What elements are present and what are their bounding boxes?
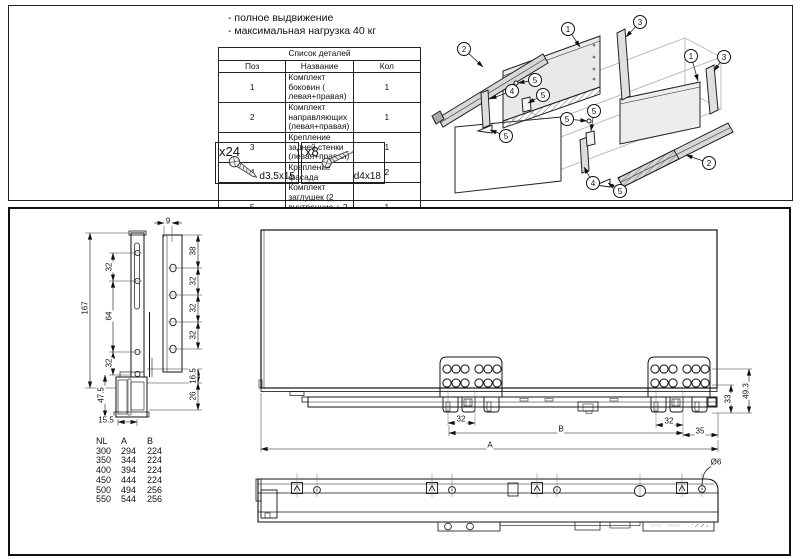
screw-size-label: d4x18 bbox=[354, 171, 381, 182]
dimension-label: 32 bbox=[189, 276, 198, 287]
dimension-label: 15.5 bbox=[97, 416, 115, 425]
dimension-label: 47.5 bbox=[97, 386, 106, 404]
rail-plan-view bbox=[256, 466, 718, 531]
assembled-side-view bbox=[259, 230, 752, 452]
instruction-sheet: - полное выдвижение- максимальная нагруз… bbox=[0, 0, 800, 559]
screw-box-small: x24 d3,5x15 bbox=[215, 142, 299, 184]
note-max-load: - максимальная нагрузка 40 кг bbox=[228, 25, 376, 37]
screw-box-large: x8 d4x18 bbox=[301, 142, 385, 184]
dimension-label: B bbox=[557, 425, 564, 434]
svg-text:3: 3 bbox=[722, 53, 727, 62]
rear-bracket-right bbox=[706, 65, 718, 114]
plug-inner bbox=[522, 97, 531, 112]
dimension-label: 32 bbox=[105, 262, 114, 273]
dimension-label: 16.5 bbox=[189, 367, 198, 385]
rear-bracket-left bbox=[617, 29, 630, 100]
dimension-label: A bbox=[486, 441, 493, 450]
note-full-extension: - полное выдвижение bbox=[228, 12, 333, 24]
dimension-label: 32 bbox=[189, 330, 198, 341]
svg-text:2: 2 bbox=[707, 159, 712, 168]
dimension-label: 32 bbox=[456, 415, 467, 424]
col-position: Поз bbox=[219, 61, 286, 73]
plug-round bbox=[514, 81, 518, 85]
dimension-label: 33 bbox=[724, 394, 733, 405]
facade-bracket-left bbox=[481, 90, 490, 128]
plug-inner bbox=[586, 131, 595, 146]
size-table: NLAB300294224350344224400394224450444224… bbox=[96, 437, 173, 505]
dimension-label: 167 bbox=[81, 300, 90, 315]
col-qty: Кол bbox=[353, 61, 420, 73]
svg-text:4: 4 bbox=[510, 87, 515, 96]
svg-text:5: 5 bbox=[592, 107, 597, 116]
svg-text:5: 5 bbox=[541, 91, 546, 100]
screw-size-label: d3,5x15 bbox=[259, 171, 295, 182]
svg-text:5: 5 bbox=[533, 76, 538, 85]
dimension-label: 26 bbox=[189, 391, 198, 402]
dimension-label: 64 bbox=[105, 311, 114, 322]
exploded-assembly-drawing: 21313545555452 bbox=[428, 7, 793, 199]
parts-list-table: Список деталей Поз Название Кол 1Комплек… bbox=[218, 47, 421, 233]
svg-text:5: 5 bbox=[618, 187, 623, 196]
svg-text:3: 3 bbox=[638, 18, 643, 27]
parts-table-row: 2Комплект направляющих (левая+правая)1 bbox=[219, 102, 421, 132]
col-name: Название bbox=[286, 61, 353, 73]
mounting-bracket-front bbox=[440, 357, 502, 412]
plug-round bbox=[587, 119, 591, 123]
side-panel-right bbox=[620, 82, 700, 144]
product-notes: - полное выдвижение- максимальная нагруз… bbox=[228, 12, 376, 38]
parts-table-row: 1Комплект боковин ( левая+правая)1 bbox=[219, 73, 421, 103]
dimension-label: 35 bbox=[695, 427, 706, 436]
svg-text:5: 5 bbox=[504, 132, 509, 141]
assembly-overview-panel: - полное выдвижение- максимальная нагруз… bbox=[8, 5, 793, 201]
dimension-label: 32 bbox=[664, 417, 675, 426]
svg-text:4: 4 bbox=[591, 179, 596, 188]
svg-text:1: 1 bbox=[689, 52, 694, 61]
dimension-label: Ø6 bbox=[710, 458, 723, 467]
front-panel bbox=[455, 117, 561, 193]
dimension-label: 9 bbox=[165, 217, 171, 226]
mounting-bracket-rear bbox=[648, 357, 710, 412]
parts-table-title: Список деталей bbox=[219, 48, 421, 61]
dimension-label: 38 bbox=[189, 246, 198, 257]
svg-text:1: 1 bbox=[566, 25, 571, 34]
size-table-row: 550544256 bbox=[96, 495, 173, 505]
dimension-label: 32 bbox=[105, 358, 114, 369]
dimension-label: 49.3 bbox=[742, 382, 751, 400]
svg-text:2: 2 bbox=[462, 45, 467, 54]
svg-text:5: 5 bbox=[565, 115, 570, 124]
technical-drawing-panel: NLAB300294224350344224400394224450444224… bbox=[8, 207, 791, 556]
dimension-label: 32 bbox=[189, 303, 198, 314]
parts-table-header: Поз Название Кол bbox=[219, 61, 421, 73]
